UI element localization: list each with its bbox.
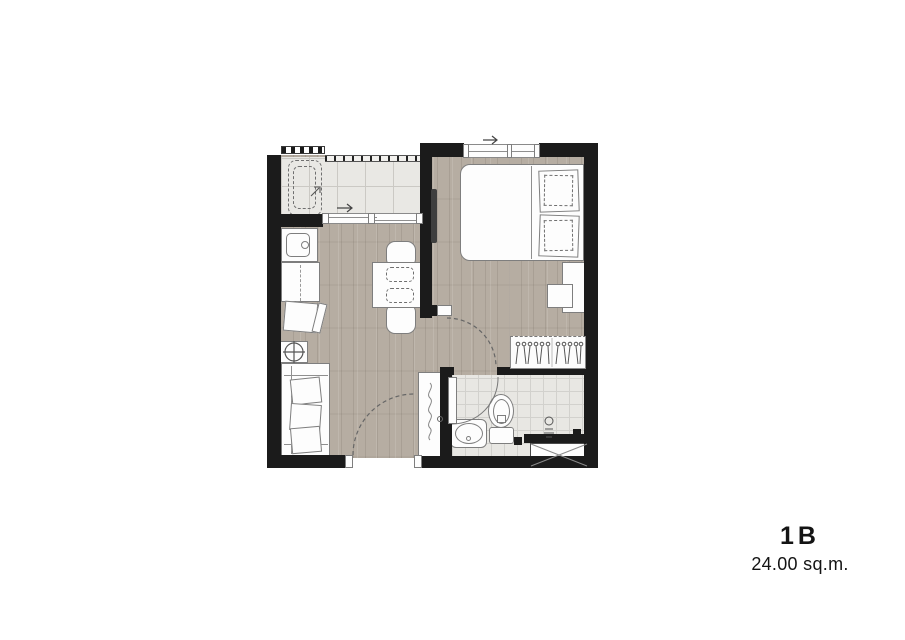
- toilet-tank: [489, 427, 514, 444]
- pillow: [538, 169, 579, 212]
- balcony-sliding-door: [322, 213, 423, 224]
- unit-name: 1B: [738, 522, 862, 551]
- sliding-panel-line: [369, 220, 421, 221]
- window-glass-line: [464, 151, 539, 152]
- unit-area: 24.00 sq.m.: [738, 554, 862, 575]
- kitchen-counter: [281, 262, 320, 302]
- sofa-armrest-top: [284, 375, 328, 376]
- cooktop-burner: [280, 341, 308, 363]
- balcony-railing: [325, 155, 420, 162]
- sofa-pillow: [290, 426, 322, 455]
- sofa-pillow: [290, 377, 323, 406]
- wall-top-left-of-window: [420, 143, 464, 157]
- toilet-bowl: [488, 394, 514, 428]
- wall-bathroom-top-left: [440, 367, 454, 375]
- entrance-door-jamb: [414, 455, 422, 468]
- kitchen-faucet: [301, 241, 309, 249]
- sink-drain: [466, 436, 471, 441]
- kitchen-sink-counter: [281, 228, 318, 262]
- window-direction-arrow: [483, 136, 497, 144]
- door-jamb: [322, 213, 329, 224]
- wall-left: [267, 155, 281, 468]
- wardrobe: [510, 336, 586, 369]
- bathroom-door-leaf: [448, 377, 457, 424]
- sofa: [281, 363, 330, 456]
- washing-machine-drum: [293, 166, 316, 209]
- window-jamb: [463, 144, 469, 158]
- bedroom-door-leaf: [437, 305, 452, 316]
- placemat: [386, 288, 414, 303]
- wall-balcony-bottom: [267, 214, 323, 227]
- bedroom-window: [463, 144, 540, 158]
- door-jamb: [416, 213, 423, 224]
- shower-fixture-block: [573, 429, 581, 437]
- entry-cabinet: [418, 372, 442, 458]
- wall-bottom-right: [415, 456, 598, 468]
- pillow-fold: [544, 220, 574, 252]
- stool: [547, 284, 573, 308]
- double-bed: [460, 164, 584, 261]
- shower-fixture-block: [514, 437, 522, 445]
- entrance-door-jamb: [345, 455, 353, 468]
- washing-machine: [288, 160, 322, 216]
- window-jamb: [507, 144, 512, 158]
- floor-plan-page: 1B 24.00 sq.m.: [0, 0, 905, 640]
- window-jamb: [534, 144, 540, 158]
- pillow-fold: [544, 175, 574, 207]
- door-jamb: [368, 213, 375, 224]
- tv: [431, 189, 437, 243]
- placemat: [386, 267, 414, 282]
- bed-sheet-line: [531, 166, 532, 259]
- toilet-flush: [497, 415, 506, 423]
- unit-label: 1B 24.00 sq.m.: [738, 522, 862, 575]
- counter-door-split: [300, 265, 301, 301]
- wall-bottom-left: [267, 455, 353, 468]
- balcony-railing-end: [281, 146, 325, 154]
- wall-right: [584, 143, 598, 468]
- pillow: [538, 214, 579, 257]
